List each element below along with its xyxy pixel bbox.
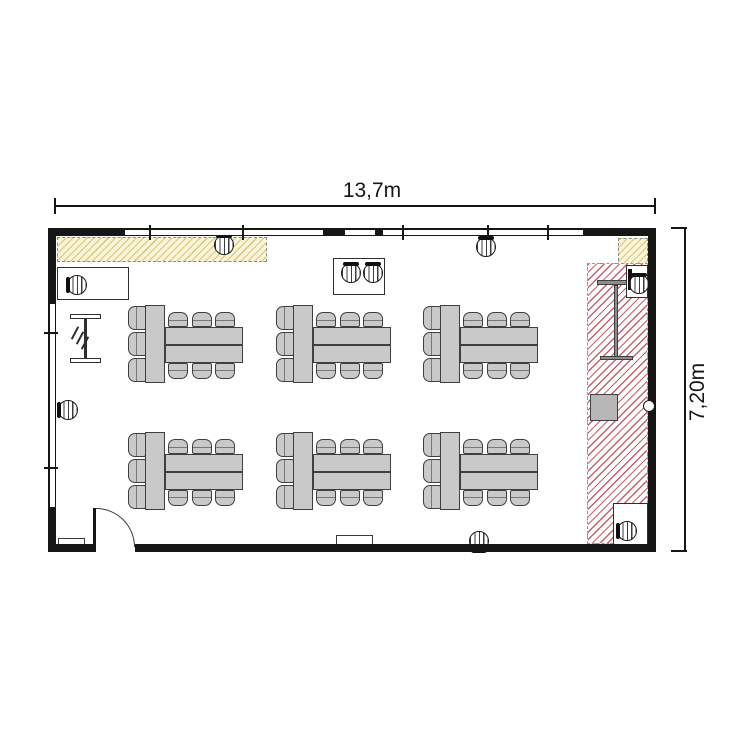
dimension-tick bbox=[654, 198, 656, 214]
chair bbox=[215, 363, 235, 379]
chair bbox=[316, 439, 336, 454]
stool-chair bbox=[67, 275, 87, 295]
dimension-tick bbox=[671, 227, 687, 229]
window-mullion-tick bbox=[44, 332, 58, 334]
stool-chair bbox=[363, 263, 383, 283]
stool-chair bbox=[629, 274, 649, 294]
table-long bbox=[460, 345, 538, 363]
table-long bbox=[460, 454, 538, 472]
chair bbox=[423, 459, 441, 483]
flipchart-bar bbox=[600, 356, 633, 360]
chair bbox=[340, 490, 360, 506]
coat-rack-bar bbox=[70, 358, 101, 363]
stool-chair bbox=[617, 521, 637, 541]
dimension-label-height: 7,20m bbox=[686, 342, 710, 442]
door-swing-arc bbox=[96, 508, 135, 547]
chair bbox=[168, 439, 188, 454]
chair bbox=[128, 459, 146, 483]
dimension-label-width: 13,7m bbox=[322, 179, 422, 203]
table-long bbox=[165, 327, 243, 345]
chair bbox=[510, 490, 530, 506]
chair bbox=[276, 358, 294, 382]
stool-back bbox=[631, 273, 647, 278]
table-end bbox=[145, 305, 165, 383]
chair bbox=[316, 312, 336, 327]
table-long bbox=[460, 327, 538, 345]
chair bbox=[128, 306, 146, 330]
chair bbox=[487, 490, 507, 506]
chair bbox=[363, 312, 383, 327]
chair bbox=[215, 439, 235, 454]
dimension-line-top bbox=[55, 205, 655, 207]
chair bbox=[423, 332, 441, 356]
chair bbox=[340, 363, 360, 379]
wall-bottom-segment bbox=[48, 544, 96, 552]
chair bbox=[192, 439, 212, 454]
chair bbox=[340, 439, 360, 454]
wall-right bbox=[648, 228, 656, 552]
hatched-square-top-right bbox=[618, 238, 648, 266]
window-top bbox=[125, 228, 323, 236]
chair bbox=[463, 363, 483, 379]
wall-bottom-segment bbox=[135, 544, 656, 552]
chair bbox=[276, 459, 294, 483]
wall-top-segment bbox=[323, 228, 345, 236]
stool-back bbox=[478, 236, 494, 241]
floorplan-canvas: 13,7m 7,20m bbox=[0, 0, 750, 750]
chair bbox=[487, 439, 507, 454]
chair bbox=[340, 312, 360, 327]
chair bbox=[510, 312, 530, 327]
chair bbox=[463, 439, 483, 454]
chair bbox=[363, 363, 383, 379]
stool-back bbox=[66, 277, 71, 293]
stool-chair bbox=[341, 263, 361, 283]
chair bbox=[363, 439, 383, 454]
chair bbox=[487, 363, 507, 379]
table-long bbox=[313, 454, 391, 472]
wall-pipe bbox=[643, 400, 655, 412]
chair bbox=[487, 312, 507, 327]
stool-chair bbox=[214, 235, 234, 255]
chair bbox=[192, 312, 212, 327]
chair bbox=[423, 358, 441, 382]
table-end bbox=[293, 305, 313, 383]
stool-back bbox=[616, 523, 621, 539]
chair bbox=[510, 439, 530, 454]
window-left bbox=[48, 304, 56, 507]
stool-back bbox=[343, 262, 359, 267]
chair bbox=[276, 433, 294, 457]
chair bbox=[128, 485, 146, 509]
table-end bbox=[440, 432, 460, 510]
window-top bbox=[345, 228, 375, 236]
wall-left-segment bbox=[48, 228, 56, 304]
table-end bbox=[440, 305, 460, 383]
table-end bbox=[293, 432, 313, 510]
chair bbox=[463, 312, 483, 327]
chair bbox=[316, 490, 336, 506]
table-long bbox=[313, 327, 391, 345]
chair bbox=[128, 433, 146, 457]
table-long bbox=[165, 454, 243, 472]
table-long bbox=[313, 472, 391, 490]
window-mullion-tick bbox=[487, 225, 489, 240]
table-long bbox=[460, 472, 538, 490]
chair bbox=[192, 363, 212, 379]
chair bbox=[128, 358, 146, 382]
chair bbox=[423, 306, 441, 330]
chair bbox=[168, 363, 188, 379]
window-mullion-tick bbox=[242, 225, 244, 240]
window-mullion-tick bbox=[44, 467, 58, 469]
window-top bbox=[383, 228, 583, 236]
stool-back bbox=[365, 262, 381, 267]
dimension-tick bbox=[54, 198, 56, 214]
window-mullion-tick bbox=[402, 225, 404, 240]
hatched-strip-top-left bbox=[57, 237, 267, 262]
chair bbox=[215, 490, 235, 506]
stool-chair bbox=[58, 400, 78, 420]
chair bbox=[423, 485, 441, 509]
chair bbox=[192, 490, 212, 506]
chair bbox=[168, 490, 188, 506]
dimension-tick bbox=[671, 550, 687, 552]
chair bbox=[363, 490, 383, 506]
table-long bbox=[313, 345, 391, 363]
stool-chair bbox=[476, 237, 496, 257]
chair bbox=[276, 332, 294, 356]
chair bbox=[423, 433, 441, 457]
chair bbox=[463, 490, 483, 506]
chair bbox=[128, 332, 146, 356]
wall-top-segment bbox=[583, 228, 656, 236]
window-mullion-tick bbox=[149, 225, 151, 240]
table-long bbox=[165, 345, 243, 363]
chair bbox=[215, 312, 235, 327]
wall-top-segment bbox=[375, 228, 383, 236]
chair bbox=[316, 363, 336, 379]
stool-back bbox=[57, 402, 62, 418]
chair bbox=[510, 363, 530, 379]
equipment-box bbox=[590, 394, 618, 421]
table-long bbox=[165, 472, 243, 490]
chair bbox=[276, 485, 294, 509]
flipchart-bar bbox=[614, 285, 618, 358]
window-mullion-tick bbox=[547, 225, 549, 240]
chair bbox=[276, 306, 294, 330]
table-end bbox=[145, 432, 165, 510]
chair bbox=[168, 312, 188, 327]
wall-top-segment bbox=[48, 228, 125, 236]
